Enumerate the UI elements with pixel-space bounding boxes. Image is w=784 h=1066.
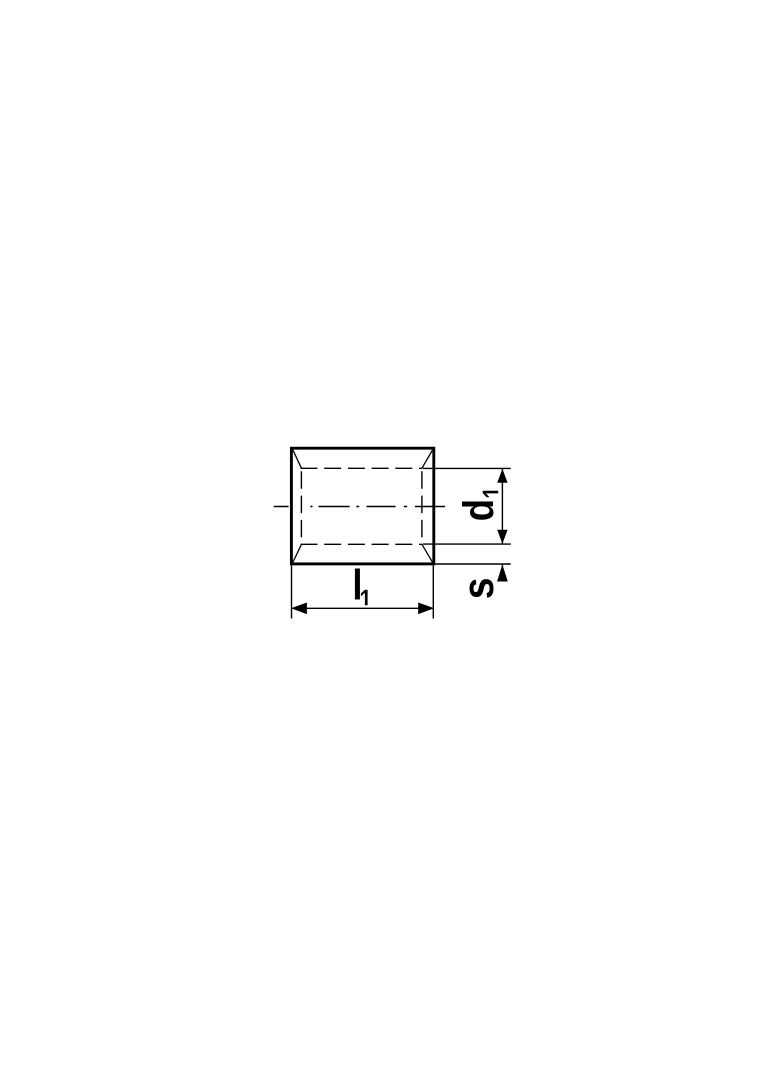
svg-text:d: d bbox=[455, 499, 502, 521]
svg-text:l: l bbox=[352, 562, 362, 609]
svg-text:s: s bbox=[453, 578, 503, 600]
